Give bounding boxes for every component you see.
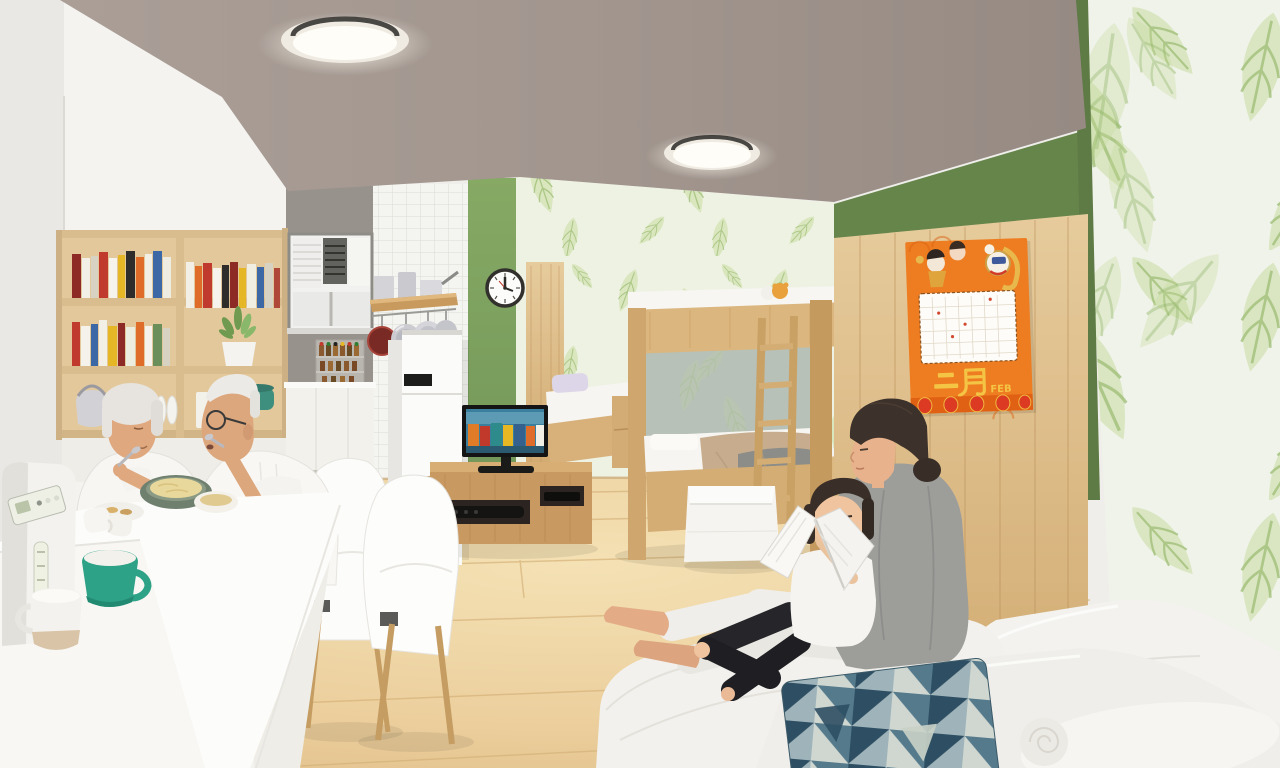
wall-clock: [487, 270, 523, 306]
cny-calendar: FEB: [905, 234, 1036, 422]
ceiling-light-2: [646, 132, 778, 180]
soundbar: [448, 506, 524, 518]
fridge-handle-top: [404, 374, 432, 386]
books-row-right: [186, 262, 280, 308]
books-row-top-left: [72, 251, 171, 298]
room-illustration: 3D interior rendering of a small open-pl…: [0, 0, 1280, 768]
books-row-bottom-left: [72, 320, 170, 366]
apartment-rendering: 3D interior rendering of a small open-pl…: [0, 0, 1280, 768]
bunk-left-post: [628, 308, 646, 560]
media-player: [544, 492, 580, 501]
bookshelf: [56, 228, 288, 482]
spice-rack: [316, 340, 364, 384]
kitchen-window: [287, 234, 375, 334]
mother-hair-bun: [913, 458, 941, 482]
bed-pillow: [551, 373, 588, 393]
ceiling-light-1: [257, 12, 433, 76]
calendar-grid: [919, 290, 1017, 363]
calendar-month-en: FEB: [990, 384, 1012, 396]
daughter-foot: [694, 642, 710, 658]
folded-blanket: [650, 434, 698, 450]
tv-screen: [466, 409, 544, 453]
